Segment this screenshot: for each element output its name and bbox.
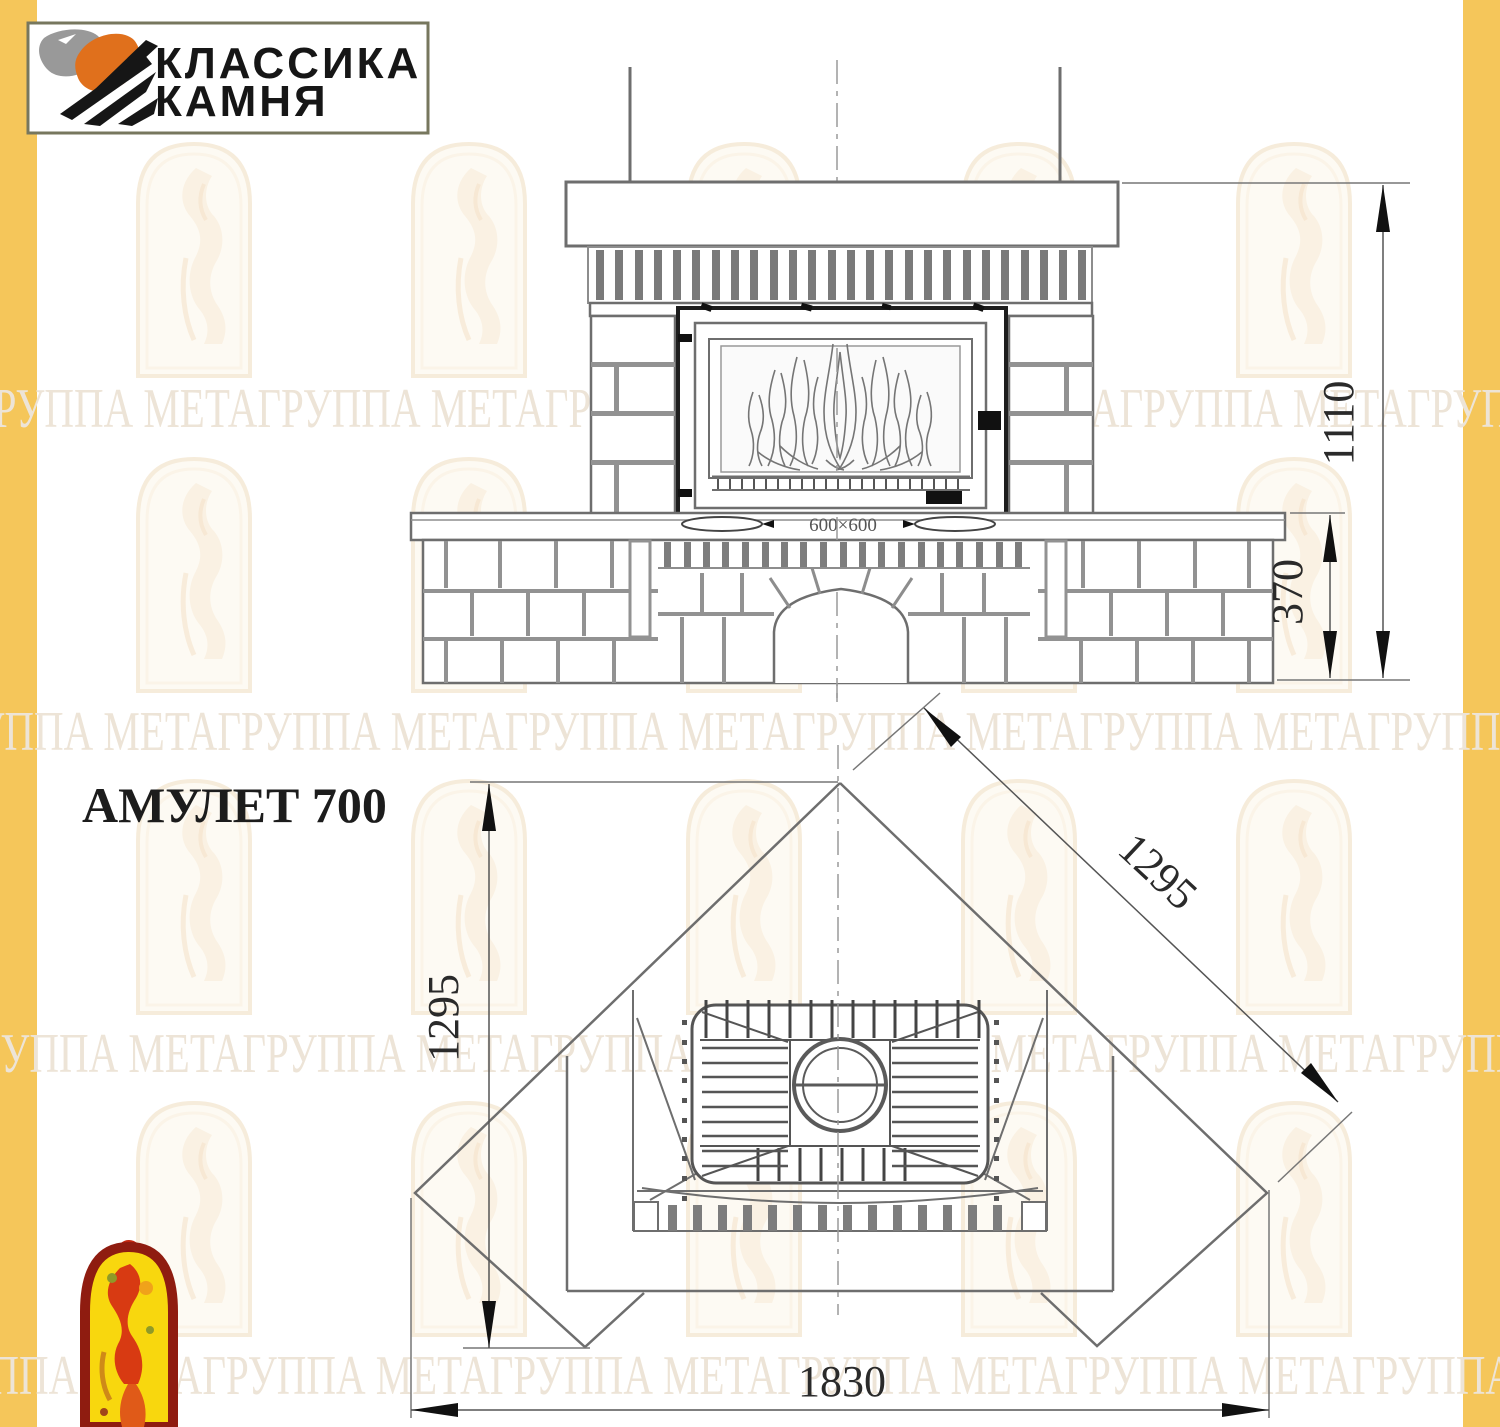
svg-text:1110: 1110 [1314, 381, 1363, 466]
svg-text:1295: 1295 [419, 974, 468, 1062]
svg-text:ГРУППА МЕТАГРУППА МЕТАГРУППА М: ГРУППА МЕТАГРУППА МЕТАГРУППА МЕТАГРУППА … [0, 1345, 1500, 1407]
svg-text:КАМНЯ: КАМНЯ [155, 77, 329, 126]
svg-text:АМУЛЕТ 700: АМУЛЕТ 700 [82, 777, 387, 833]
svg-text:1830: 1830 [798, 1357, 886, 1406]
svg-text:370: 370 [1263, 559, 1312, 625]
svg-text:ГРУППА МЕТАГРУППА МЕТАГРУППА М: ГРУППА МЕТАГРУППА МЕТАГРУППА МЕТАГРУППА … [0, 701, 1500, 763]
svg-text:600×600: 600×600 [809, 515, 877, 536]
